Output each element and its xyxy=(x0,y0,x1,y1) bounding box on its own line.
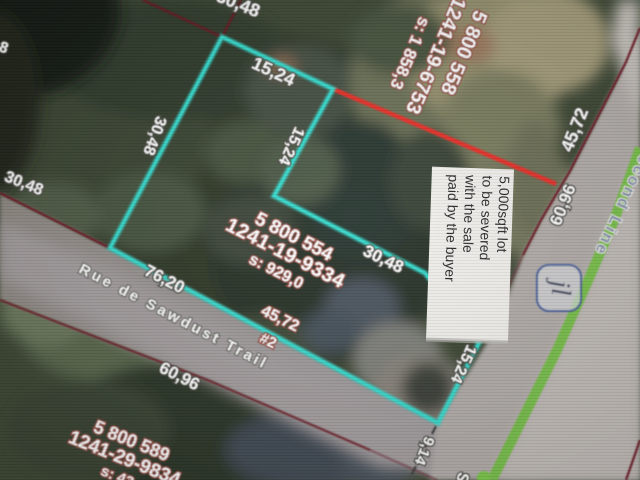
svg-text:jl: jl xyxy=(546,277,576,295)
svg-text:with the sale: with the sale xyxy=(460,174,479,254)
svg-text:5,000sqft lot: 5,000sqft lot xyxy=(494,176,513,253)
svg-text:to be severed: to be severed xyxy=(477,175,496,260)
